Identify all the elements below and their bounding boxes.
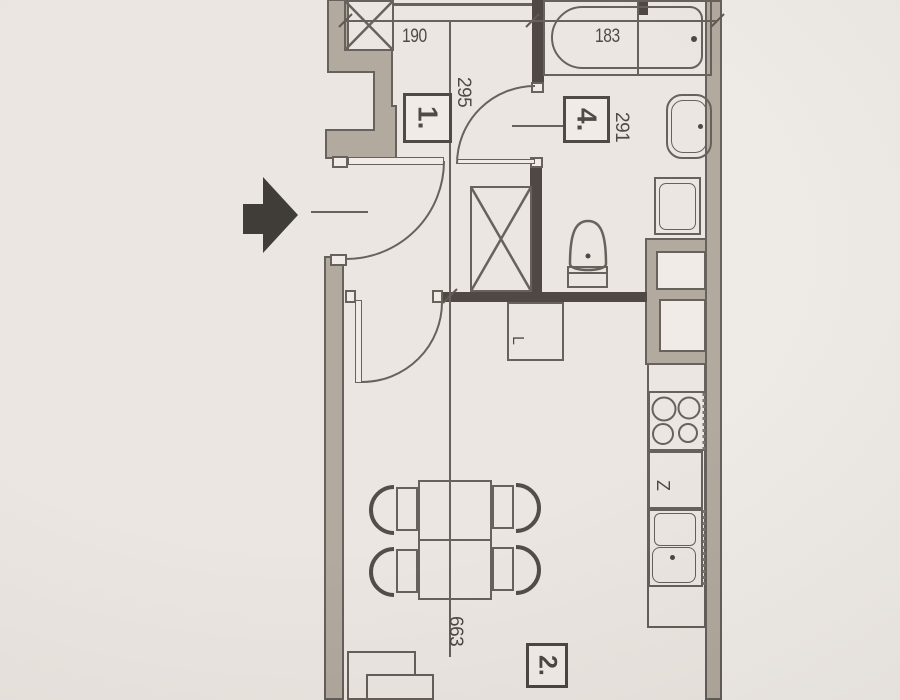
sink-drain [670, 555, 675, 560]
bath-door-jamb-top [531, 82, 544, 93]
room-number-1: 1. [414, 106, 442, 129]
label-leader-1 [311, 211, 368, 213]
room2-door-arc [362, 302, 442, 382]
sink-basin-lower [652, 547, 696, 583]
chair-back-left-2 [371, 549, 394, 595]
washbasin-faucet [698, 124, 703, 129]
room2-door-jamb-right [432, 290, 443, 303]
toilet-bowl [570, 221, 606, 270]
room-label-2: 2. [526, 643, 568, 688]
wall-top-line [393, 3, 532, 6]
room-number-4: 4. [573, 108, 601, 131]
entrance-door-jamb-top [332, 156, 348, 168]
table-divider [418, 539, 492, 541]
room2-door-leaf [355, 300, 362, 383]
dishwasher-label: Z [652, 480, 673, 491]
wall-left [324, 256, 344, 700]
paper-margin-right [722, 0, 900, 700]
room-label-1: 1. [403, 93, 452, 143]
toilet-drain-dot [586, 254, 591, 259]
bathtub-drain [691, 36, 697, 42]
chair-seat-right-1 [492, 485, 514, 529]
label-leader-4 [512, 125, 564, 127]
dim-bath-depth: 291 [610, 112, 632, 142]
entrance-door-arc [346, 161, 444, 259]
dim-living-length: 663 [444, 616, 466, 646]
entrance-door-jamb-bottom [330, 254, 347, 266]
washing-machine-inner [659, 183, 696, 230]
dim-bath-width: 183 [595, 26, 620, 48]
room-number-2: 2. [535, 655, 560, 676]
shaft-x-box-top [344, 0, 394, 51]
chair-seat-left-2 [396, 549, 418, 593]
entrance-arrow [243, 177, 298, 253]
fridge-label: L [508, 336, 526, 344]
chair-back-right-1 [516, 485, 539, 531]
shaft-x-box-hall [470, 186, 532, 292]
bathtub-inner [551, 6, 703, 69]
toilet-tank [567, 266, 608, 288]
sideboard-rect-front [366, 674, 434, 700]
chair-back-right-2 [516, 547, 539, 593]
chair-back-left-1 [371, 487, 394, 533]
chair-seat-right-2 [492, 547, 514, 591]
bath-door-leaf [457, 159, 535, 164]
dim-line-horizontal [345, 20, 717, 22]
shaft-niche-1 [656, 251, 706, 290]
toilet-tank-line [569, 272, 606, 274]
entrance-door-leaf [348, 157, 444, 165]
dim-hall-width: 190 [402, 26, 427, 48]
shaft-niche-2 [659, 299, 706, 352]
wall-hall-bottom [443, 292, 647, 302]
room-label-4: 4. [563, 96, 610, 143]
floor-plan: L Z [0, 0, 900, 700]
stove [648, 391, 706, 451]
sink-basin-upper [654, 513, 696, 546]
chair-seat-left-1 [396, 487, 418, 531]
fridge [507, 302, 564, 361]
dim-hall-depth: 295 [452, 77, 474, 107]
